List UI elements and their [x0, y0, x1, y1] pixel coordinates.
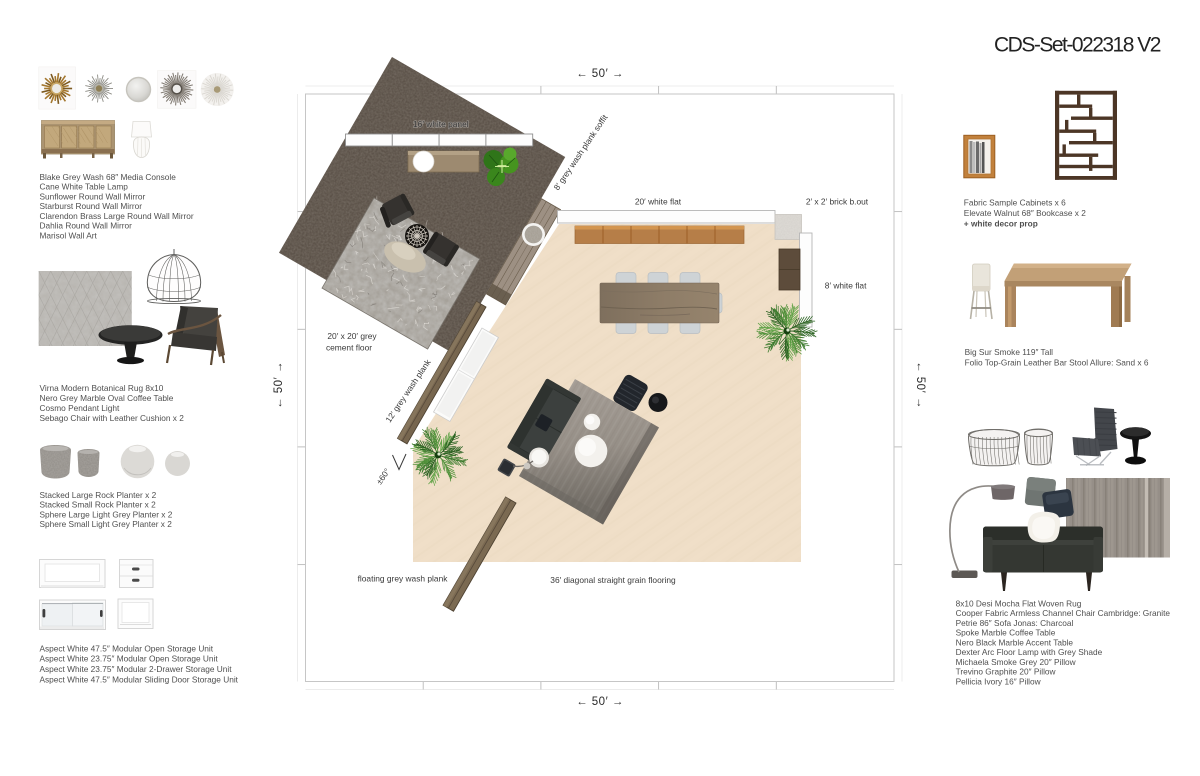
svg-text:floating grey wash plank: floating grey wash plank: [358, 574, 449, 584]
svg-text:8x10 Desi Mocha Flat Woven Rug: 8x10 Desi Mocha Flat Woven Rug: [956, 598, 1082, 608]
svg-text:Michaela Smoke Grey 20″ Pillow: Michaela Smoke Grey 20″ Pillow: [956, 657, 1077, 667]
svg-text:← 50′ →: ← 50′ →: [576, 696, 624, 708]
svg-text:Cane White Table Lamp: Cane White Table Lamp: [40, 182, 129, 192]
svg-text:8′ grey wash plank soffit: 8′ grey wash plank soffit: [552, 112, 610, 192]
svg-text:Aspect White 23.75″ Modular Op: Aspect White 23.75″ Modular Open Storage…: [40, 654, 219, 664]
svg-text:Elevate Walnut 68″ Bookcase x: Elevate Walnut 68″ Bookcase x 2: [964, 208, 1086, 218]
svg-text:Cosmo Pendant Light: Cosmo Pendant Light: [40, 403, 120, 413]
svg-text:Petrie 86″ Sofa Jonas: Charcoa: Petrie 86″ Sofa Jonas: Charcoal: [956, 618, 1074, 628]
svg-text:Nero Grey Marble Oval Coffee T: Nero Grey Marble Oval Coffee Table: [40, 393, 174, 403]
svg-text:16′ white panel: 16′ white panel: [413, 119, 469, 129]
svg-text:Dahlia Round Wall Mirror: Dahlia Round Wall Mirror: [40, 221, 133, 231]
svg-text:±60°: ±60°: [374, 466, 392, 486]
svg-text:2′ x 2′ brick b.out: 2′ x 2′ brick b.out: [806, 197, 869, 207]
svg-text:Sphere Large Light Grey Plante: Sphere Large Light Grey Planter x 2: [40, 509, 173, 519]
svg-text:Clarendon Brass Large Round Wa: Clarendon Brass Large Round Wall Mirror: [40, 211, 194, 221]
svg-text:Aspect White 47.5″ Modular Sli: Aspect White 47.5″ Modular Sliding Door …: [40, 674, 239, 684]
svg-text:CDS-Set-022318 V2: CDS-Set-022318 V2: [994, 34, 1161, 57]
svg-text:Fabric Sample Cabinets x 6: Fabric Sample Cabinets x 6: [964, 198, 1066, 208]
svg-text:Stacked Small Rock Planter x 2: Stacked Small Rock Planter x 2: [40, 500, 157, 510]
svg-text:Sunflower Round Wall Mirror: Sunflower Round Wall Mirror: [40, 191, 146, 201]
svg-text:Nero Black Marble Accent Table: Nero Black Marble Accent Table: [956, 637, 1074, 647]
svg-text:8′ white flat: 8′ white flat: [825, 281, 867, 291]
svg-text:36′ diagonal straight grain fl: 36′ diagonal straight grain flooring: [550, 575, 676, 585]
svg-text:Aspect White 23.75″ Modular 2-: Aspect White 23.75″ Modular 2-Drawer Sto…: [40, 664, 233, 674]
svg-text:Marisol Wall Art: Marisol Wall Art: [40, 231, 98, 241]
svg-text:Big Sur Smoke 119″ Tall: Big Sur Smoke 119″ Tall: [965, 347, 1054, 357]
svg-text:Aspect White 47.5″ Modular Ope: Aspect White 47.5″ Modular Open Storage …: [40, 643, 214, 653]
svg-text:Starburst Round Wall Mirror: Starburst Round Wall Mirror: [40, 201, 143, 211]
svg-text:Blake Grey Wash 68″ Media Cons: Blake Grey Wash 68″ Media Console: [40, 172, 177, 182]
svg-text:Spoke Marble Coffee Table: Spoke Marble Coffee Table: [956, 628, 1056, 638]
svg-text:Cooper Fabric Armless Channel: Cooper Fabric Armless Channel Chair Camb…: [956, 608, 1171, 618]
svg-text:← 50′ →: ← 50′ →: [576, 68, 624, 80]
svg-text:Trevino Graphite 20″ Pillow: Trevino Graphite 20″ Pillow: [956, 667, 1057, 677]
svg-text:Sphere Small Light Grey Plante: Sphere Small Light Grey Planter x 2: [40, 519, 173, 529]
svg-text:20′ white flat: 20′ white flat: [635, 197, 682, 207]
svg-text:Dexter Arc Floor Lamp with Gre: Dexter Arc Floor Lamp with Grey Shade: [956, 647, 1103, 657]
svg-text:Sebago Chair with Leather Cush: Sebago Chair with Leather Cushion x 2: [40, 413, 185, 423]
svg-text:← 50′ →: ← 50′ →: [273, 361, 285, 409]
svg-text:← 50′ →: ← 50′ →: [914, 361, 926, 409]
svg-text:Folio Top-Grain Leather Bar St: Folio Top-Grain Leather Bar Stool Allure…: [965, 357, 1149, 367]
svg-text:Stacked Large Rock Planter x 2: Stacked Large Rock Planter x 2: [40, 490, 157, 500]
svg-text:+ white decor prop: + white decor prop: [964, 219, 1038, 229]
svg-text:20′ x 20′ grey: 20′ x 20′ grey: [327, 331, 377, 341]
svg-text:Virna Modern Botanical Rug 8x1: Virna Modern Botanical Rug 8x10: [40, 383, 164, 393]
svg-text:cement floor: cement floor: [326, 343, 372, 353]
svg-text:Pellicia Ivory 16″ Pillow: Pellicia Ivory 16″ Pillow: [956, 676, 1042, 686]
